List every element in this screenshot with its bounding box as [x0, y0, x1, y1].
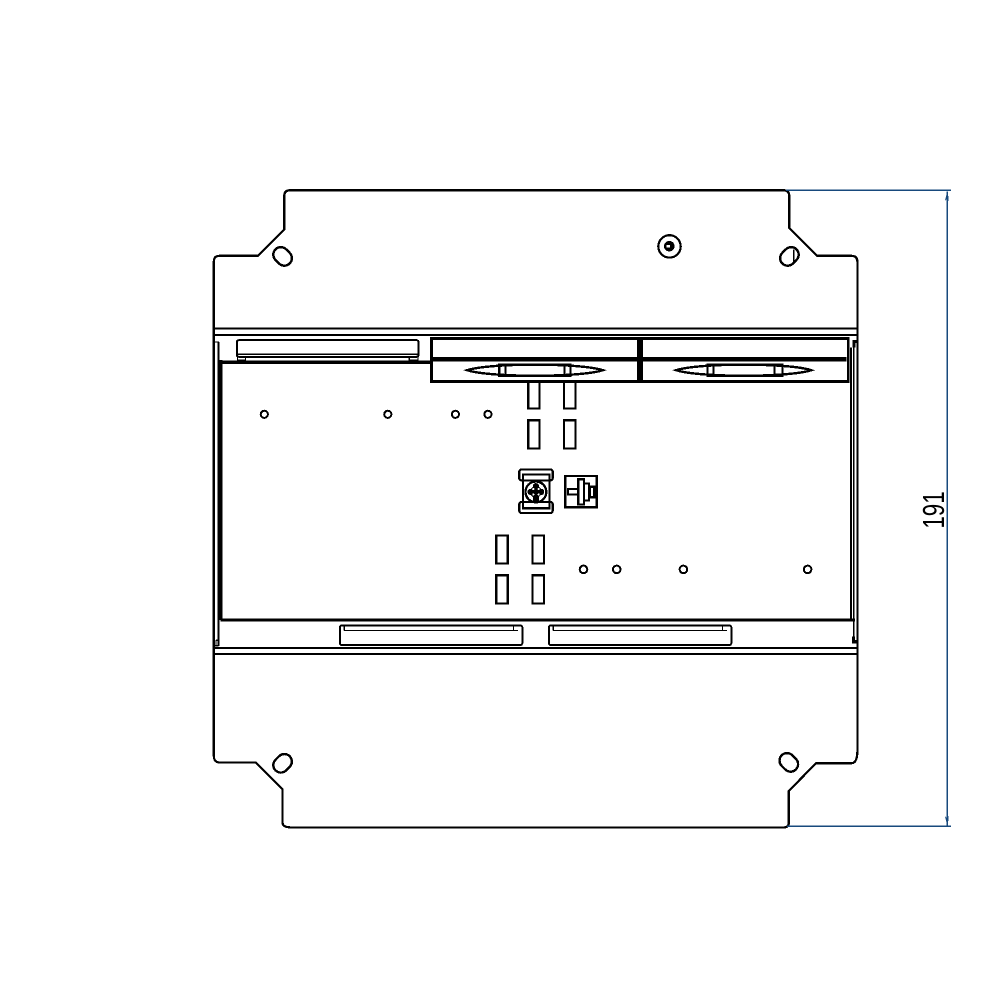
svg-text:191: 191	[917, 491, 951, 528]
